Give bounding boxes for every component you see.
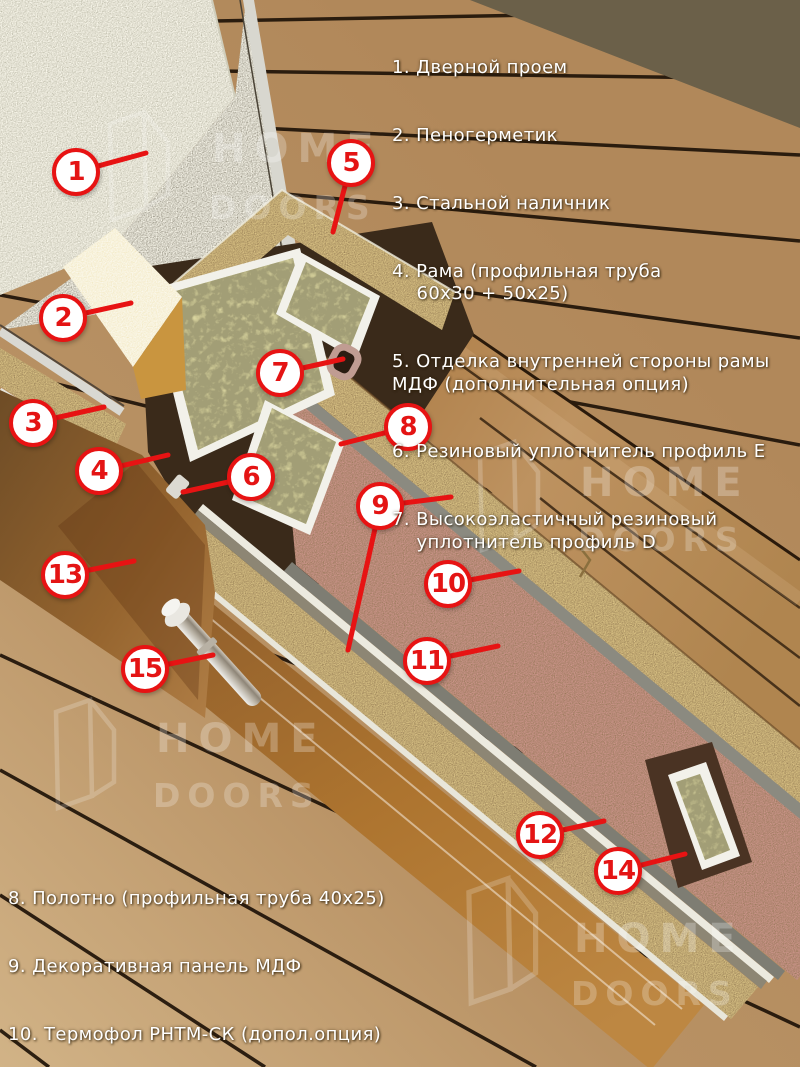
legend-item: 6. Резиновый уплотнитель профиль Е [392, 441, 797, 464]
legend-item: 1. Дверной проем [392, 57, 797, 80]
callout-15: 15 [121, 645, 169, 693]
legend-item: 2. Пеногерметик [392, 125, 797, 148]
watermark-text: HOME [574, 916, 745, 962]
callout-4: 4 [75, 447, 123, 495]
legend-item: 7. Высокоэластичный резиновый уплотнител… [392, 509, 797, 554]
watermark-text: DOORS [209, 188, 377, 227]
watermark-text: DOORS [153, 776, 321, 815]
legend-bottom: 8. Полотно (профильная труба 40х25) 9. Д… [8, 843, 448, 1067]
legend-item: 9. Декоративная панель МДФ [8, 956, 448, 979]
callout-1: 1 [52, 148, 100, 196]
legend-item: 5. Отделка внутренней стороны рамы МДФ (… [392, 351, 797, 396]
legend-item: 3. Стальной наличник [392, 193, 797, 216]
callout-12: 12 [516, 811, 564, 859]
legend-top: 1. Дверной проем 2. Пеногерметик 3. Стал… [392, 12, 797, 577]
watermark-text: HOME [156, 716, 327, 762]
callout-3: 3 [9, 399, 57, 447]
callout-5: 5 [327, 139, 375, 187]
legend-item: 8. Полотно (профильная труба 40х25) [8, 888, 448, 911]
legend-item: 10. Термофол РНТМ-СК (допол.опция) [8, 1024, 448, 1047]
legend-item: 4. Рама (профильная труба 60х30 + 50х25) [392, 261, 797, 306]
callout-11: 11 [403, 637, 451, 685]
callout-14: 14 [594, 847, 642, 895]
callout-2: 2 [39, 294, 87, 342]
watermark-text: DOORS [571, 974, 739, 1013]
callout-7: 7 [256, 349, 304, 397]
callout-6: 6 [227, 453, 275, 501]
door-cutaway-diagram: HOME DOORS HOME DOORS HOME DOORS HOME DO… [0, 0, 800, 1067]
callout-13: 13 [41, 551, 89, 599]
